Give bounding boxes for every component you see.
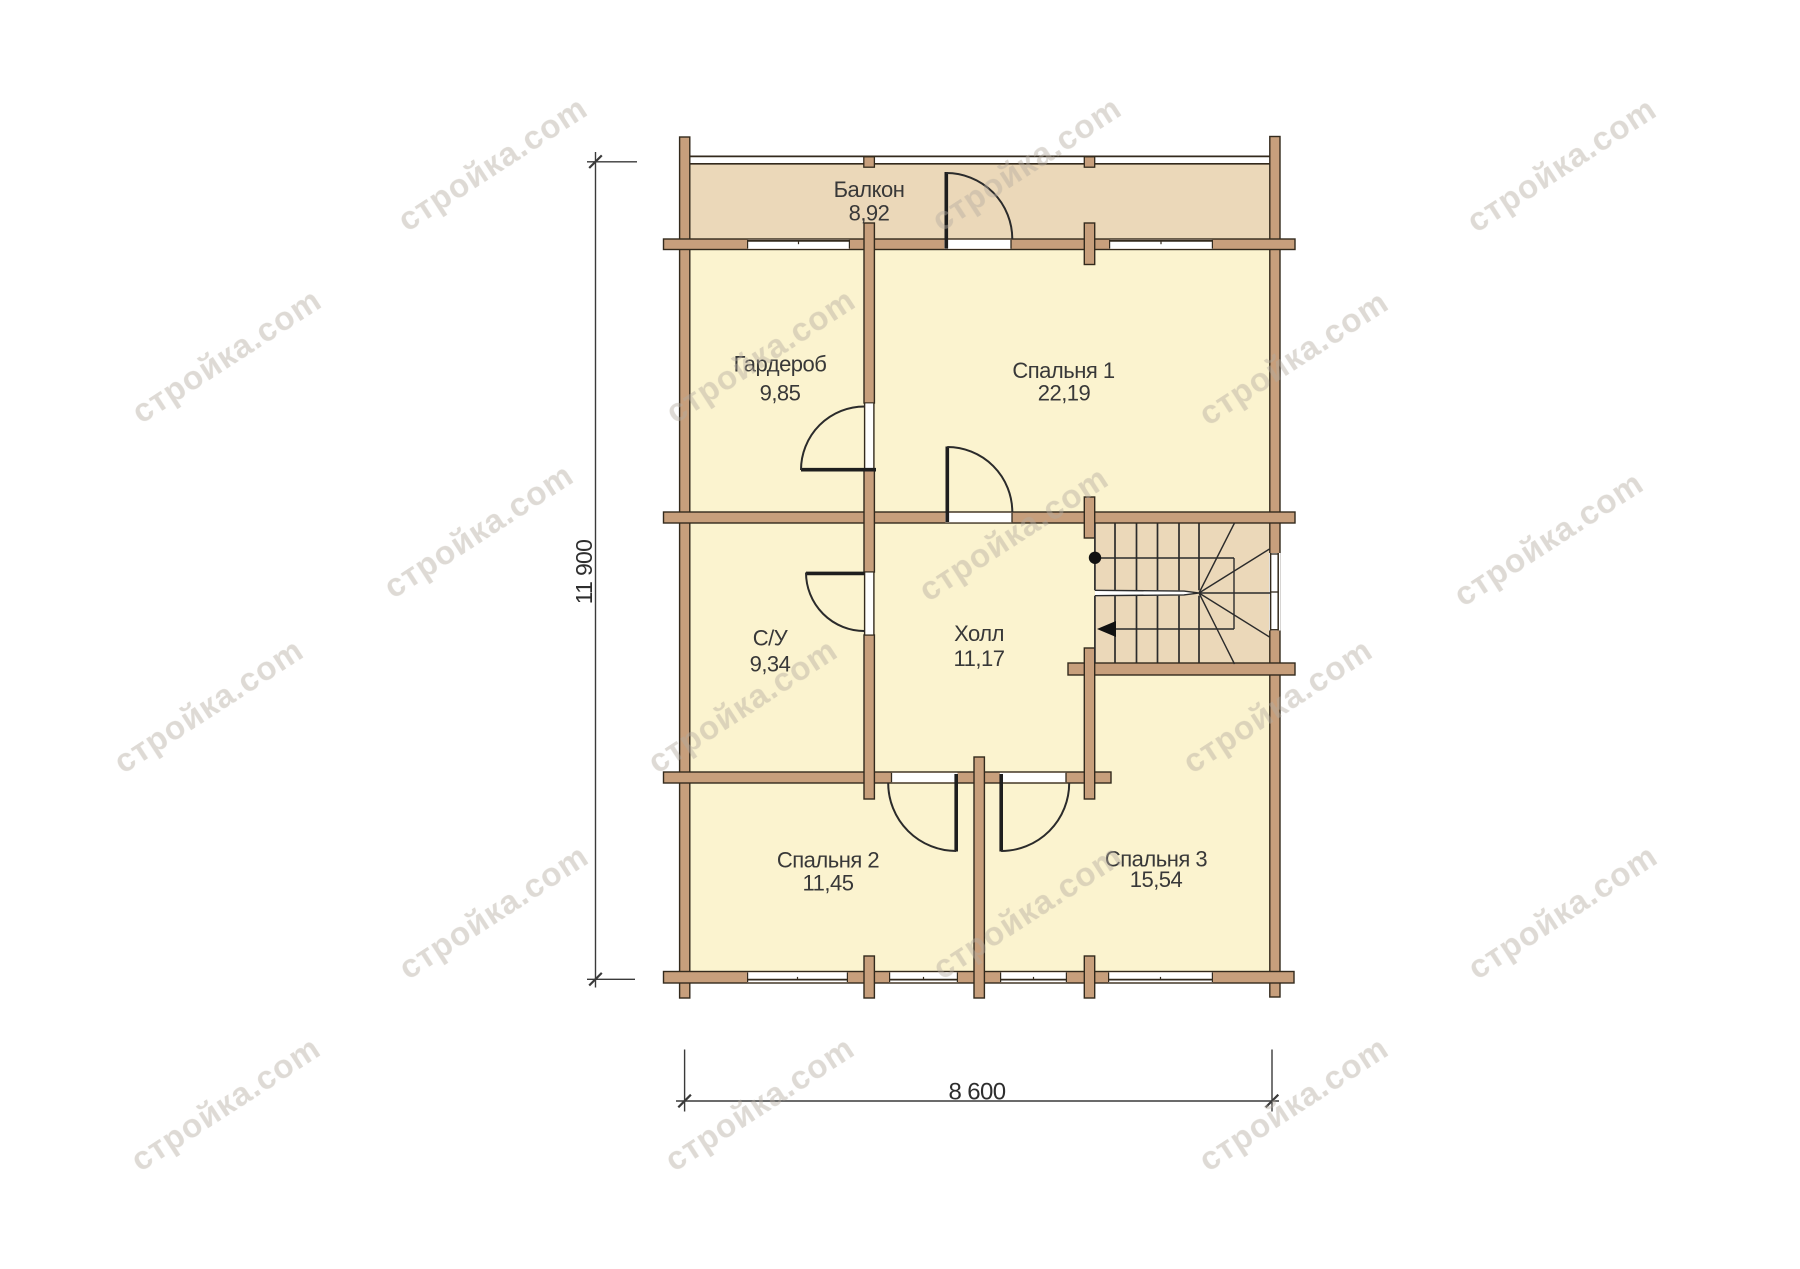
svg-text:8,92: 8,92 bbox=[849, 201, 890, 226]
svg-text:15,54: 15,54 bbox=[1130, 867, 1183, 892]
svg-text:11,45: 11,45 bbox=[803, 871, 854, 896]
svg-text:Спальня 2: Спальня 2 bbox=[777, 848, 880, 873]
svg-text:11,17: 11,17 bbox=[954, 646, 1005, 671]
svg-text:11 900: 11 900 bbox=[571, 540, 597, 604]
svg-text:8 600: 8 600 bbox=[948, 1079, 1005, 1106]
svg-text:Спальня 1: Спальня 1 bbox=[1012, 358, 1115, 383]
svg-text:22,19: 22,19 bbox=[1038, 381, 1091, 406]
svg-text:9,85: 9,85 bbox=[760, 381, 801, 406]
svg-text:Холл: Холл bbox=[954, 621, 1004, 646]
svg-text:Балкон: Балкон bbox=[834, 177, 905, 202]
svg-text:С/У: С/У bbox=[753, 626, 789, 651]
